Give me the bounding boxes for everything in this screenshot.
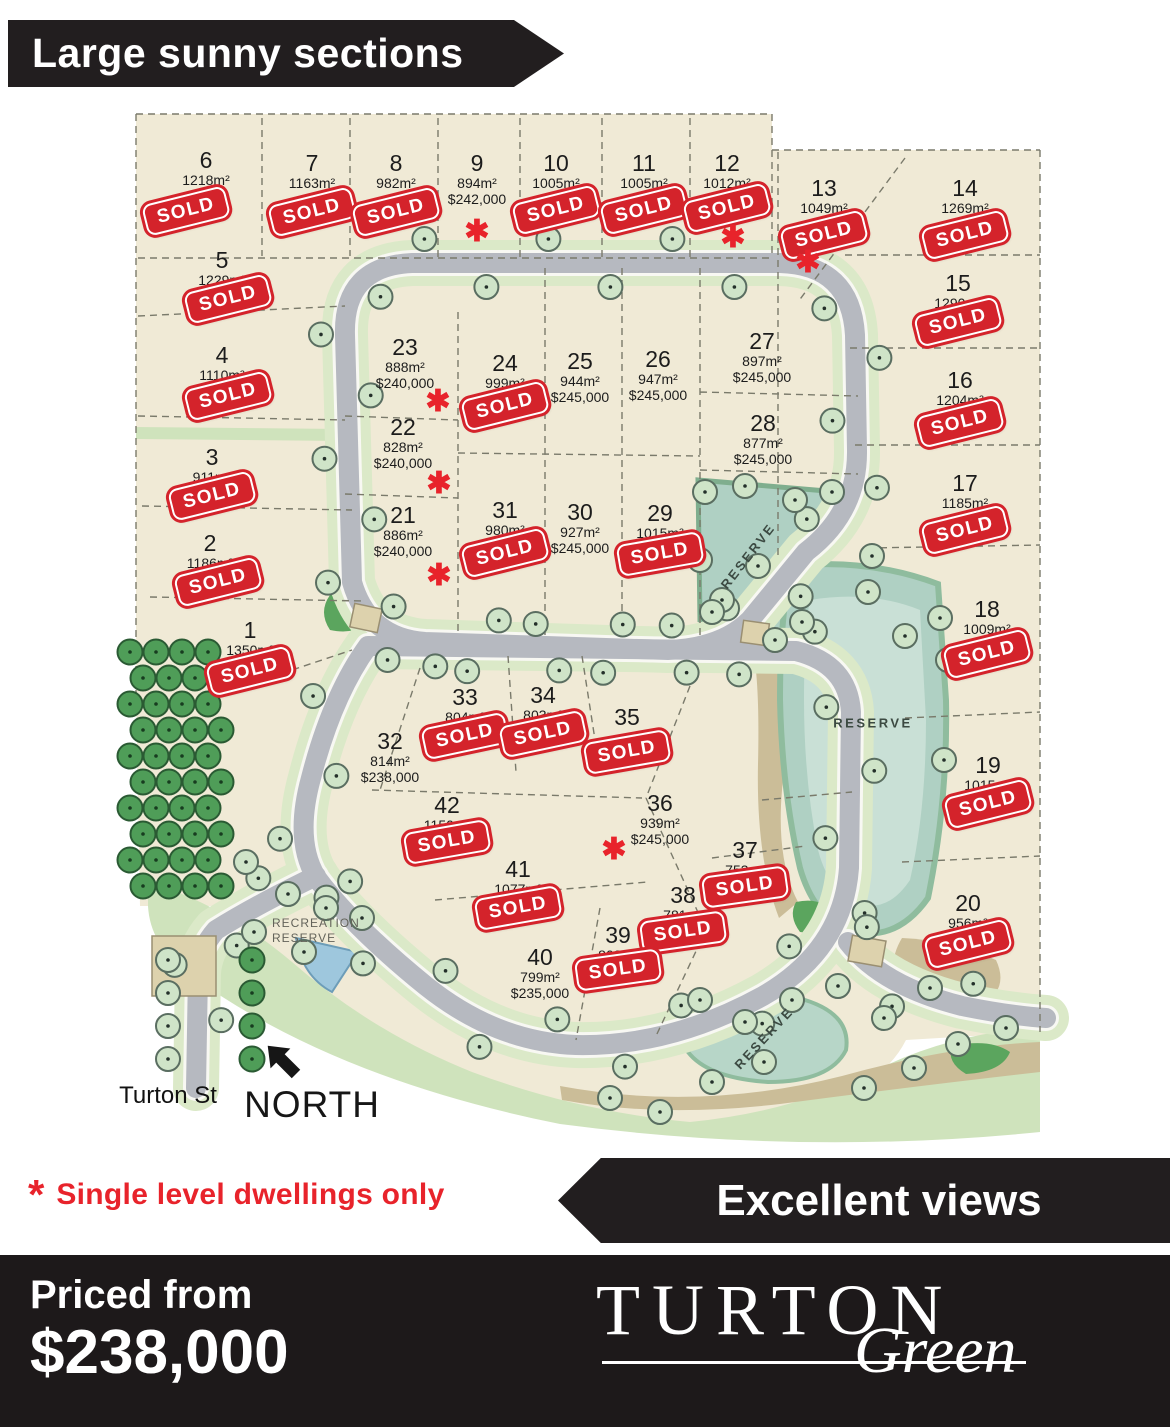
lot-number: 2: [187, 531, 233, 555]
lot-label: 131049m²: [800, 176, 847, 216]
lot-price: $245,000: [734, 451, 792, 468]
lot-price: $235,000: [511, 985, 569, 1002]
lot-size: 927m²: [551, 524, 609, 540]
lot-price: $245,000: [629, 387, 687, 404]
lot-label: 35: [614, 705, 640, 729]
lot-label: 26947m²$245,000: [629, 347, 687, 404]
lot-price: $245,000: [551, 540, 609, 557]
sold-stamp: SOLD: [402, 819, 491, 865]
lot-label: 27897m²$245,000: [733, 329, 791, 386]
lot-label: 22828m²$240,000: [374, 415, 432, 472]
lot-label: 21886m²$240,000: [374, 503, 432, 560]
lot-price: $242,000: [448, 191, 506, 208]
note-text: Single level dwellings only: [56, 1178, 444, 1212]
footer-bar: Priced from $238,000 TURTON Green: [0, 1255, 1170, 1427]
sold-stamp: SOLD: [779, 209, 869, 261]
sold-stamp: SOLD: [351, 186, 441, 238]
lot-number: 25: [551, 349, 609, 373]
lot-number: 22: [374, 415, 432, 439]
lot-number: 33: [445, 685, 485, 709]
lot-number: 9: [448, 151, 506, 175]
lot-number: 34: [523, 683, 563, 707]
lot-number: 21: [374, 503, 432, 527]
lot-label: 9894m²$242,000: [448, 151, 506, 208]
recreation-reserve-label: RECREATION RESERVE: [272, 916, 360, 946]
priced-from-label: Priced from: [30, 1273, 252, 1318]
lot-number: 16: [936, 368, 983, 392]
lot-label: 23888m²$240,000: [376, 335, 434, 392]
lot-size: 886m²: [374, 527, 432, 543]
lot-size: 799m²: [511, 969, 569, 985]
sold-stamp: SOLD: [920, 504, 1010, 556]
lot-label: 30927m²$245,000: [551, 500, 609, 557]
brand-logo: TURTON Green: [596, 1269, 1056, 1419]
note-asterisk: *: [28, 1174, 44, 1216]
lot-price: $245,000: [733, 369, 791, 386]
lot-size: 1218m²: [182, 172, 229, 188]
lot-number: 14: [941, 176, 988, 200]
sold-stamp: SOLD: [582, 729, 671, 775]
lot-number: 7: [289, 151, 335, 175]
lot-label: 111005m²: [620, 151, 667, 191]
sold-stamp: SOLD: [599, 184, 689, 236]
lot-number: 29: [636, 501, 683, 525]
sold-stamp: SOLD: [511, 184, 601, 236]
lot-label: 171185m²: [942, 471, 988, 511]
lot-number: 23: [376, 335, 434, 359]
lot-number: 3: [193, 445, 232, 469]
lot-number: 20: [948, 891, 988, 915]
lot-number: 5: [198, 248, 245, 272]
flyer-page: { "banner_top": {"label": "Large sunny s…: [0, 0, 1170, 1427]
lot-size: 897m²: [733, 353, 791, 369]
banner-excellent-views: Excellent views: [558, 1158, 1170, 1243]
lot-size: 944m²: [551, 373, 609, 389]
lot-number: 40: [511, 945, 569, 969]
lot-size: 982m²: [376, 175, 416, 191]
lot-label: 25944m²$245,000: [551, 349, 609, 406]
lot-number: 28: [734, 411, 792, 435]
brand-green: Green: [854, 1313, 1017, 1389]
sold-stamp: SOLD: [920, 209, 1010, 261]
lot-label: 32814m²$238,000: [361, 729, 419, 786]
lot-label: 141269m²: [941, 176, 988, 216]
lot-number: 42: [424, 793, 470, 817]
lot-size: 877m²: [734, 435, 792, 451]
lot-number: 6: [182, 148, 229, 172]
lot-size: 814m²: [361, 753, 419, 769]
lot-number: 32: [361, 729, 419, 753]
price-value: $238,000: [30, 1317, 289, 1388]
lot-number: 13: [800, 176, 847, 200]
single-level-asterisk: ✱: [425, 387, 450, 417]
lot-number: 30: [551, 500, 609, 524]
lot-label: 71163m²: [289, 151, 335, 191]
single-level-asterisk: ✱: [601, 835, 626, 865]
sold-stamp: SOLD: [639, 910, 727, 953]
sold-stamp: SOLD: [615, 531, 704, 577]
lot-number: 38: [663, 883, 703, 907]
lot-size: 828m²: [374, 439, 432, 455]
lot-number: 1: [226, 618, 273, 642]
sold-stamp: SOLD: [420, 712, 510, 761]
sold-stamp: SOLD: [498, 710, 588, 759]
banner-views-label: Excellent views: [686, 1176, 1041, 1226]
lot-number: 39: [598, 923, 638, 947]
lot-size: 1163m²: [289, 175, 335, 191]
lot-label: 8982m²: [376, 151, 416, 191]
north-label: NORTH: [244, 1084, 380, 1126]
lot-number: 26: [629, 347, 687, 371]
single-level-asterisk: ✱: [426, 469, 451, 499]
lot-label: 181009m²: [963, 597, 1010, 637]
lot-price: $240,000: [374, 543, 432, 560]
lot-number: 35: [614, 705, 640, 729]
lot-number: 36: [631, 791, 689, 815]
single-level-asterisk: ✱: [426, 561, 451, 591]
lot-price: $240,000: [374, 455, 432, 472]
sold-stamp: SOLD: [141, 185, 231, 237]
lot-number: 10: [532, 151, 579, 175]
lot-number: 41: [494, 857, 541, 881]
lot-size: 947m²: [629, 371, 687, 387]
lot-number: 8: [376, 151, 416, 175]
single-level-note: * Single level dwellings only: [28, 1174, 445, 1216]
lot-size: 894m²: [448, 175, 506, 191]
reserve-label: RESERVE: [833, 716, 912, 731]
lot-number: 4: [199, 343, 244, 367]
lot-number: 18: [963, 597, 1010, 621]
lot-label: 28877m²$245,000: [734, 411, 792, 468]
lot-price: $245,000: [631, 831, 689, 848]
lot-label: 61218m²: [182, 148, 229, 188]
sold-stamp: SOLD: [267, 186, 357, 238]
lot-label: 101005m²: [532, 151, 579, 191]
lot-number: 17: [942, 471, 988, 495]
lot-size: 939m²: [631, 815, 689, 831]
lot-price: $238,000: [361, 769, 419, 786]
single-level-asterisk: ✱: [720, 223, 745, 253]
sold-stamp: SOLD: [701, 865, 789, 908]
lot-number: 24: [485, 351, 525, 375]
lot-number: 15: [934, 271, 981, 295]
lot-number: 31: [485, 498, 525, 522]
lot-number: 11: [620, 151, 667, 175]
lot-size: 888m²: [376, 359, 434, 375]
lot-price: $245,000: [551, 389, 609, 406]
lot-number: 37: [725, 838, 765, 862]
lot-number: 27: [733, 329, 791, 353]
lot-label: 40799m²$235,000: [511, 945, 569, 1002]
street-label: Turton St: [119, 1082, 217, 1110]
lot-label: 121012m²: [703, 151, 750, 191]
single-level-asterisk: ✱: [795, 248, 820, 278]
sold-stamp: SOLD: [574, 948, 662, 991]
single-level-asterisk: ✱: [464, 217, 489, 247]
sold-stamp: SOLD: [473, 885, 562, 931]
lot-number: 19: [964, 753, 1011, 777]
lot-number: 12: [703, 151, 750, 175]
lot-label: 36939m²$245,000: [631, 791, 689, 848]
